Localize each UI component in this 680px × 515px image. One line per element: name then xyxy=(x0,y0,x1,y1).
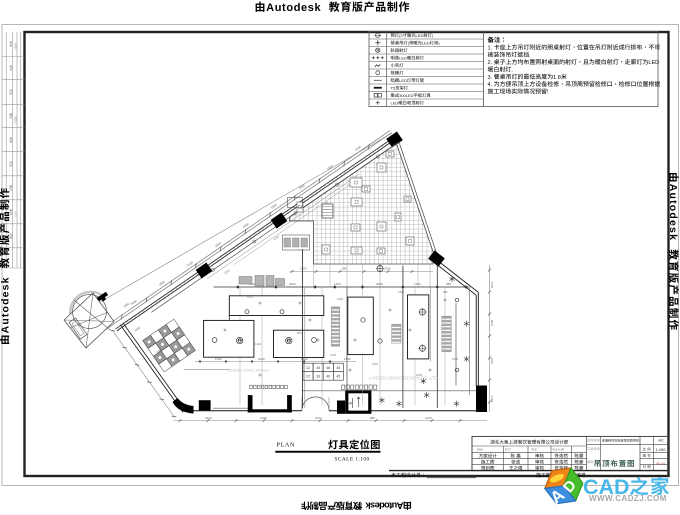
svg-text:Autodesk: Autodesk xyxy=(667,184,679,241)
svg-text:900: 900 xyxy=(297,331,302,335)
svg-text:2400: 2400 xyxy=(258,357,265,361)
svg-text:1140: 1140 xyxy=(344,357,351,361)
svg-text:Autodesk: Autodesk xyxy=(365,501,404,511)
svg-text:880: 880 xyxy=(342,267,347,271)
svg-text:SCALE 1:100: SCALE 1:100 xyxy=(335,456,370,462)
svg-text:1.8: 1.8 xyxy=(553,75,561,81)
svg-text:1198: 1198 xyxy=(490,320,494,327)
svg-text:12: 12 xyxy=(306,366,310,370)
svg-text:300LED: 300LED xyxy=(399,93,414,98)
svg-text:3204: 3204 xyxy=(205,416,212,420)
svg-text:880: 880 xyxy=(370,416,375,420)
svg-text:LANDED-SPACE DESIGN: LANDED-SPACE DESIGN xyxy=(229,369,270,373)
svg-text:1404: 1404 xyxy=(372,362,379,366)
svg-text:980: 980 xyxy=(443,290,448,294)
svg-text:LED: LED xyxy=(648,60,659,66)
svg-text:39: 39 xyxy=(316,375,320,379)
svg-text:WWW.CADZJ.COM: WWW.CADZJ.COM xyxy=(589,494,667,503)
svg-text:2014: 2014 xyxy=(315,416,322,420)
svg-text:2014: 2014 xyxy=(490,281,494,288)
svg-text:12: 12 xyxy=(306,375,310,379)
svg-text:): ) xyxy=(14,42,18,43)
svg-text:1460: 1460 xyxy=(337,297,344,301)
svg-text:T5: T5 xyxy=(391,85,396,90)
svg-text:1460: 1460 xyxy=(414,282,421,286)
svg-text:46: 46 xyxy=(336,366,340,370)
svg-text:LED: LED xyxy=(422,40,430,45)
svg-text:1400: 1400 xyxy=(334,282,341,286)
svg-text:2.: 2. xyxy=(488,60,493,66)
svg-text:2014: 2014 xyxy=(490,395,494,402)
svg-text:Autodesk: Autodesk xyxy=(266,2,321,14)
svg-text:980: 980 xyxy=(446,282,451,286)
svg-text:1350: 1350 xyxy=(384,267,391,271)
svg-text:45: 45 xyxy=(316,366,320,370)
svg-text:45: 45 xyxy=(336,375,340,379)
svg-text:LANDED-SPACE DESIGN CO.,LTD: LANDED-SPACE DESIGN CO.,LTD xyxy=(369,376,438,381)
svg-text:2100: 2100 xyxy=(425,416,432,420)
svg-text:1140: 1140 xyxy=(255,342,261,346)
svg-text:1:100: 1:100 xyxy=(656,447,667,452)
svg-text:2100: 2100 xyxy=(416,373,423,377)
svg-text:LED: LED xyxy=(416,33,424,38)
svg-text:0.00: 0.00 xyxy=(14,211,18,217)
svg-text:4.: 4. xyxy=(488,82,493,88)
svg-text:Autodesk: Autodesk xyxy=(0,276,11,333)
svg-text:3204: 3204 xyxy=(490,357,494,364)
svg-text:LED: LED xyxy=(399,55,407,60)
svg-text:1500: 1500 xyxy=(452,357,459,361)
svg-text:2400: 2400 xyxy=(289,282,296,286)
svg-text:): ) xyxy=(14,116,18,117)
svg-text:46: 46 xyxy=(326,375,330,379)
svg-text:1200: 1200 xyxy=(330,353,337,357)
svg-text:P-04: P-04 xyxy=(657,461,666,466)
svg-text:(: ( xyxy=(14,49,18,50)
svg-text:3.: 3. xyxy=(488,75,493,81)
svg-text:1870: 1870 xyxy=(247,295,254,299)
svg-text:48: 48 xyxy=(326,366,330,370)
svg-text:1140: 1140 xyxy=(215,357,222,361)
svg-text:LED: LED xyxy=(399,78,407,83)
svg-text:1404: 1404 xyxy=(301,357,308,361)
svg-text:PLAN: PLAN xyxy=(277,441,296,448)
svg-text:AT: AT xyxy=(349,402,353,406)
svg-text:1198: 1198 xyxy=(260,416,267,420)
svg-text:1.: 1. xyxy=(488,45,493,51)
svg-text:A2: A2 xyxy=(659,438,665,443)
svg-text:3000: 3000 xyxy=(376,282,383,286)
svg-text:LED: LED xyxy=(391,100,399,105)
svg-text:1263: 1263 xyxy=(300,267,307,271)
svg-text:(: ( xyxy=(14,123,18,124)
svg-text:2400: 2400 xyxy=(398,290,405,294)
